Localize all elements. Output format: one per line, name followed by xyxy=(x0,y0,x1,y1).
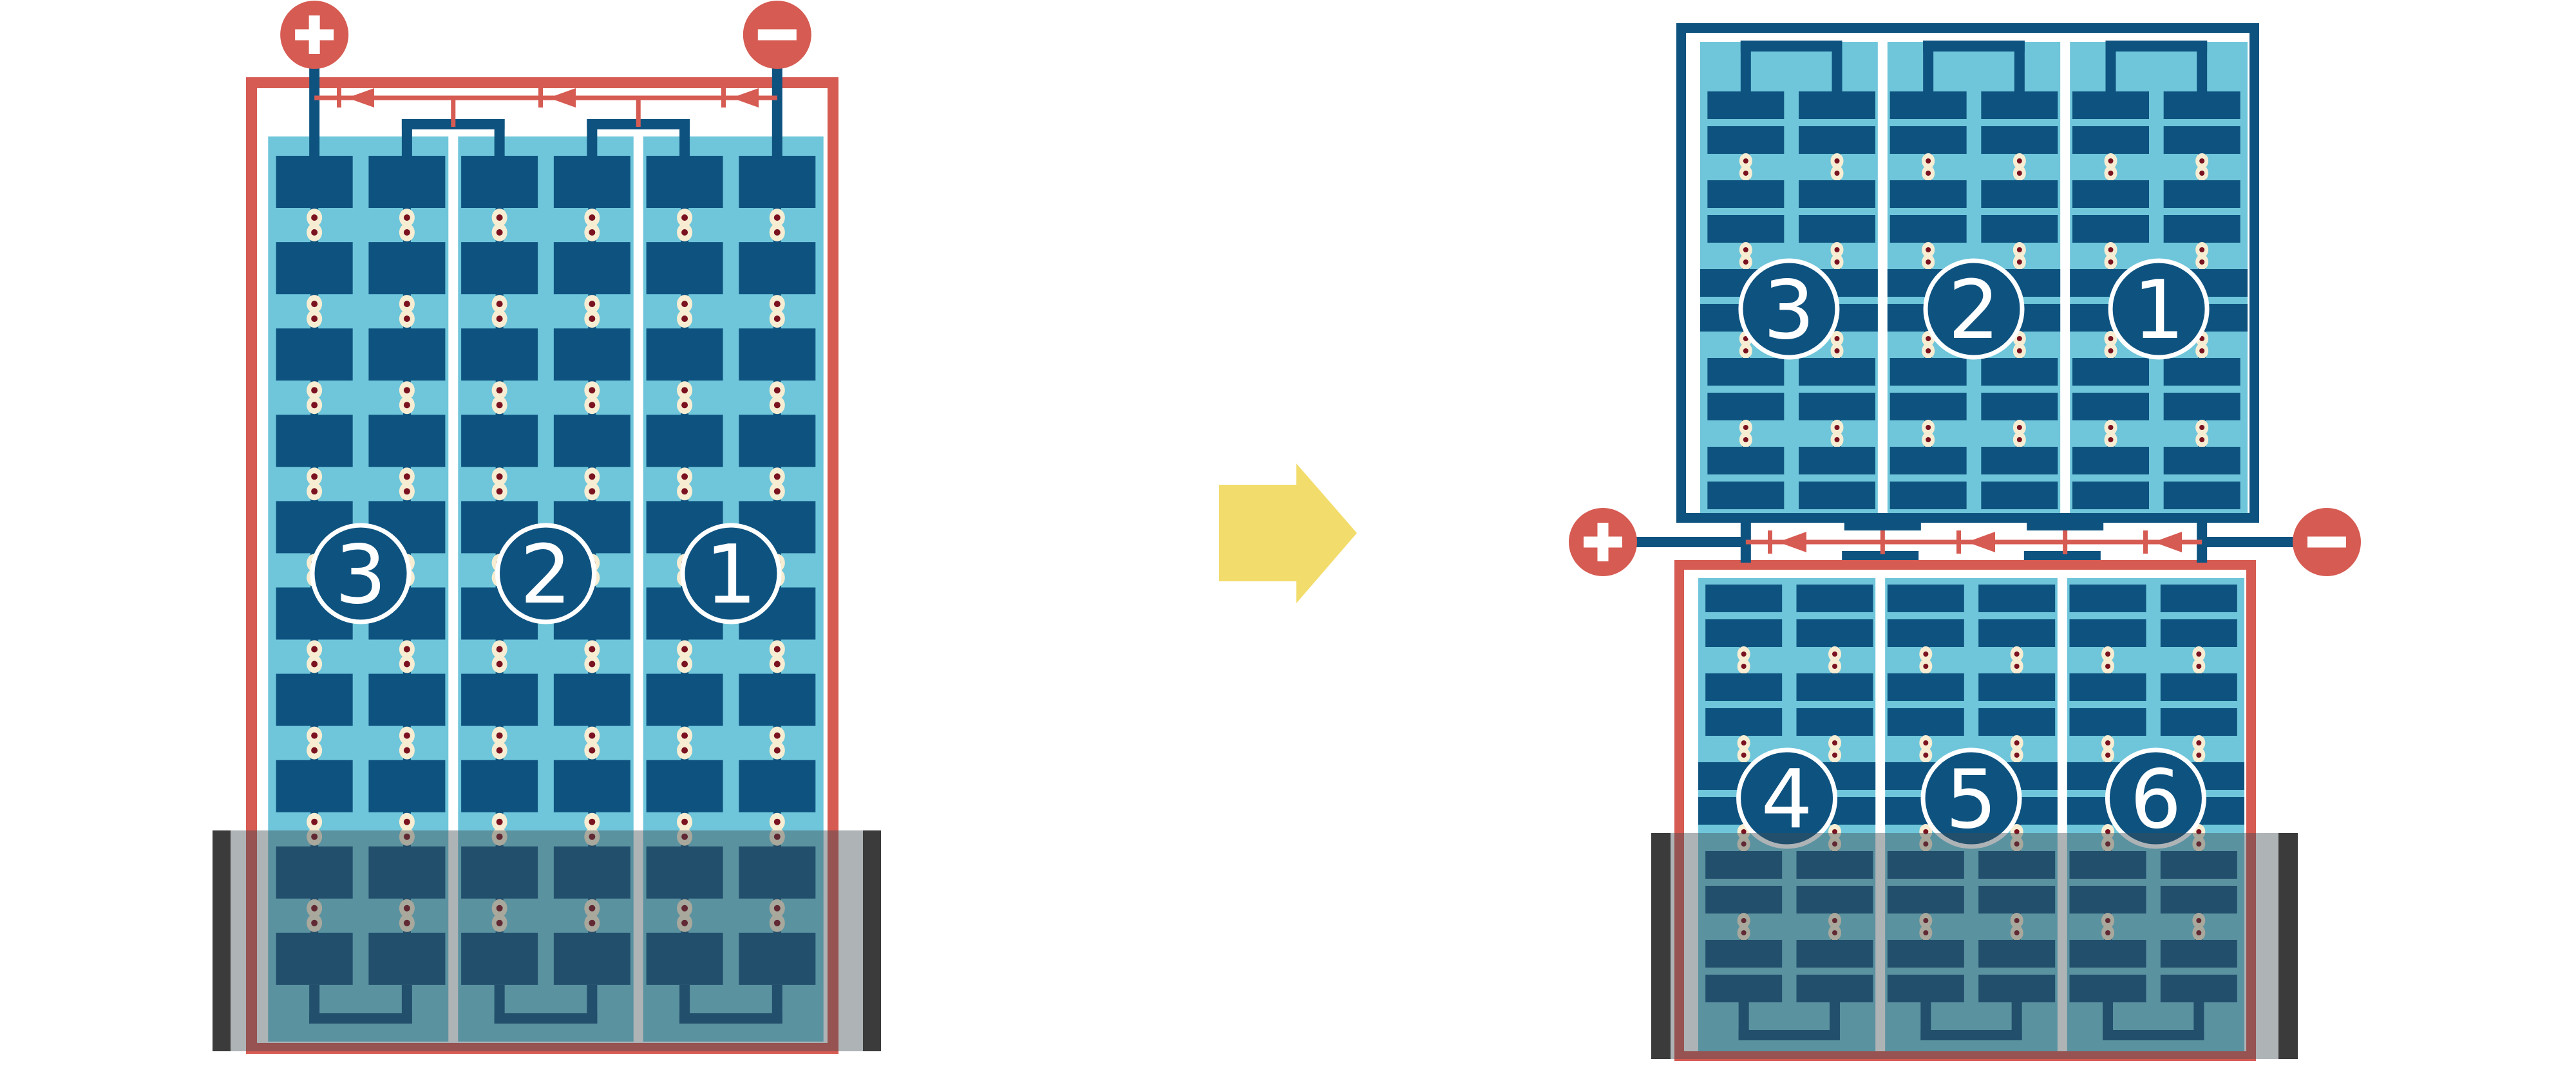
shading-overlay-right xyxy=(1651,833,2298,1059)
solar-half-cell xyxy=(2072,358,2149,386)
solar-half-cell xyxy=(1981,91,2058,119)
solar-half-cell xyxy=(2164,358,2240,386)
solar-half-cell xyxy=(1707,91,1784,119)
solder-dot xyxy=(1923,740,1928,745)
solar-half-cell xyxy=(1890,393,1967,420)
section-badge: 1 xyxy=(2110,261,2207,357)
solar-cell xyxy=(554,415,630,467)
solder-dot xyxy=(1743,348,1748,353)
solder-dot xyxy=(681,661,688,668)
section-badge: 5 xyxy=(1923,750,2020,847)
solar-half-cell xyxy=(1707,126,1784,154)
diode-cathode-bar xyxy=(721,88,726,108)
solar-half-cell xyxy=(1707,447,1784,474)
solder-dot xyxy=(774,402,781,408)
solder-dot xyxy=(589,387,595,393)
solder-dot xyxy=(589,214,595,221)
solar-half-cell xyxy=(2164,126,2240,154)
section-badge: 3 xyxy=(1741,261,1837,357)
solar-half-cell xyxy=(2072,180,2149,208)
solar-half-cell xyxy=(1707,358,1784,386)
solder-dot xyxy=(1743,437,1748,442)
solar-half-cell xyxy=(1978,619,2055,647)
solder-dot xyxy=(1835,158,1840,164)
solder-dot xyxy=(774,819,781,825)
diode-bus-tap xyxy=(451,97,455,127)
solar-cell xyxy=(739,415,815,467)
diagram-canvas: 321321456 xyxy=(0,0,2576,1068)
section-badge: 1 xyxy=(683,525,779,622)
solar-half-cell xyxy=(2070,708,2146,736)
solder-dot xyxy=(2017,425,2022,430)
section-number: 1 xyxy=(705,527,757,622)
solar-half-cell xyxy=(1707,215,1784,243)
negative-terminal xyxy=(2293,508,2361,576)
solder-dot xyxy=(404,315,410,322)
solar-half-cell xyxy=(1890,482,1967,509)
string-top-bridge xyxy=(2197,41,2207,95)
diode-cathode-bar xyxy=(538,88,543,108)
solder-dot xyxy=(404,819,410,825)
solder-dot xyxy=(2108,171,2114,176)
solar-half-cell xyxy=(1981,447,2058,474)
section-number: 4 xyxy=(1761,752,1812,847)
solder-dot xyxy=(681,387,688,393)
solder-dot xyxy=(2199,158,2204,164)
section-divider xyxy=(1878,42,1888,513)
solder-dot xyxy=(497,214,503,221)
solder-dot xyxy=(2199,171,2204,176)
solder-dot xyxy=(2199,437,2204,442)
solder-dot xyxy=(681,229,688,236)
solder-dot xyxy=(2014,740,2020,745)
solar-cell xyxy=(461,415,538,467)
solar-half-cell xyxy=(2070,585,2146,612)
solder-dot xyxy=(404,402,410,408)
solder-dot xyxy=(1741,651,1747,657)
solar-half-cell xyxy=(2161,708,2237,736)
string-top-bridge xyxy=(1741,41,1751,95)
solder-dot xyxy=(404,733,410,739)
solar-half-cell xyxy=(1888,619,1964,647)
solder-dot xyxy=(2108,336,2114,341)
solar-half-cell xyxy=(2164,215,2240,243)
solder-dot xyxy=(681,402,688,408)
solder-dot xyxy=(311,819,317,825)
solder-dot xyxy=(1741,753,1747,758)
solar-cell xyxy=(554,760,630,812)
solar-half-cell xyxy=(1705,673,1782,701)
solder-dot xyxy=(404,301,410,307)
solder-dot xyxy=(497,646,503,653)
solder-dot xyxy=(1743,171,1748,176)
solder-dot xyxy=(1832,753,1837,758)
solder-dot xyxy=(1926,425,1931,430)
solder-dot xyxy=(311,733,317,739)
shade-band xyxy=(1651,833,2298,1059)
solder-dot xyxy=(1926,348,1931,353)
solder-dot xyxy=(404,747,410,754)
solar-half-cell xyxy=(1981,358,2058,386)
solder-dot xyxy=(2017,336,2022,341)
solar-half-cell xyxy=(2161,673,2237,701)
solder-dot xyxy=(2196,753,2201,758)
solder-dot xyxy=(404,473,410,480)
section-badge: 2 xyxy=(1926,261,2022,357)
solder-dot xyxy=(2017,259,2022,265)
solder-dot xyxy=(774,473,781,480)
solder-dot xyxy=(2199,247,2204,252)
string-top-bridge xyxy=(587,119,597,169)
solder-dot xyxy=(1835,437,1840,442)
solar-half-cell xyxy=(1705,708,1782,736)
solder-dot xyxy=(311,488,317,494)
bus-tab xyxy=(1842,551,1918,560)
solder-dot xyxy=(681,473,688,480)
solar-half-cell xyxy=(1707,180,1784,208)
solar-cell xyxy=(647,242,723,294)
solar-cell xyxy=(276,328,353,380)
shade-end-cap xyxy=(213,830,231,1051)
string-top-bridge xyxy=(679,119,690,169)
solder-dot xyxy=(589,819,595,825)
solder-dot xyxy=(2105,740,2110,745)
solar-half-cell xyxy=(1797,708,1873,736)
string-top-bridge xyxy=(402,119,412,169)
solar-cell xyxy=(368,328,445,380)
solder-dot xyxy=(2108,247,2114,252)
section-number: 1 xyxy=(2133,263,2184,357)
solder-dot xyxy=(2017,247,2022,252)
section-number: 3 xyxy=(335,527,386,622)
solar-half-cell xyxy=(1890,447,1967,474)
solar-cell xyxy=(461,760,538,812)
solar-half-cell xyxy=(1978,673,2055,701)
solder-dot xyxy=(1923,753,1928,758)
solar-half-cell xyxy=(1799,482,1875,509)
solar-cell xyxy=(276,674,353,726)
solar-cell xyxy=(739,674,815,726)
solder-dot xyxy=(589,646,595,653)
solder-dot xyxy=(1743,425,1748,430)
solder-dot xyxy=(497,387,503,393)
solder-dot xyxy=(1835,425,1840,430)
solder-dot xyxy=(1926,171,1931,176)
solder-dot xyxy=(404,214,410,221)
solder-dot xyxy=(1923,664,1928,669)
solder-dot xyxy=(1926,158,1931,164)
solder-dot xyxy=(497,473,503,480)
solar-half-cell xyxy=(2072,482,2149,509)
solder-dot xyxy=(2196,664,2201,669)
solar-cell xyxy=(461,674,538,726)
solder-dot xyxy=(1743,259,1748,265)
solar-half-cell xyxy=(1707,393,1784,420)
solar-half-cell xyxy=(1888,585,1964,612)
solar-half-cell xyxy=(1981,393,2058,420)
solar-half-cell xyxy=(1981,482,2058,509)
solder-dot xyxy=(774,229,781,236)
solar-cell xyxy=(368,415,445,467)
solder-dot xyxy=(1835,259,1840,265)
solar-half-cell xyxy=(1978,708,2055,736)
string-top-bridge xyxy=(1923,41,2025,52)
minus-icon xyxy=(2307,537,2346,548)
solder-dot xyxy=(2108,425,2114,430)
solder-dot xyxy=(497,229,503,236)
solar-half-cell xyxy=(1799,447,1875,474)
solder-dot xyxy=(2017,171,2022,176)
solder-dot xyxy=(2108,437,2114,442)
solar-half-cell xyxy=(1799,215,1875,243)
solder-dot xyxy=(774,733,781,739)
solder-dot xyxy=(774,747,781,754)
solar-cell xyxy=(554,328,630,380)
shading-overlay-left xyxy=(213,830,881,1051)
solder-dot xyxy=(681,315,688,322)
solder-dot xyxy=(1741,740,1747,745)
solder-dot xyxy=(311,315,317,322)
solder-dot xyxy=(681,214,688,221)
solder-dot xyxy=(497,747,503,754)
diode-bus-tap xyxy=(636,97,641,127)
solder-dot xyxy=(681,646,688,653)
positive-lead xyxy=(309,61,319,200)
plus-icon xyxy=(309,15,320,54)
positive-terminal xyxy=(1569,508,1637,576)
solar-cell xyxy=(739,328,815,380)
solder-dot xyxy=(497,733,503,739)
bus-tab xyxy=(1844,521,1921,530)
diode-cathode-bar xyxy=(2143,530,2148,554)
solder-dot xyxy=(681,488,688,494)
shade-band xyxy=(213,830,881,1051)
solder-dot xyxy=(1835,348,1840,353)
solder-dot xyxy=(497,301,503,307)
solar-module-wiring-diagram: 321321456 xyxy=(0,0,2576,1068)
solder-dot xyxy=(774,315,781,322)
solder-dot xyxy=(774,387,781,393)
section-number: 3 xyxy=(1763,263,1815,357)
solder-dot xyxy=(1835,247,1840,252)
bus-tab xyxy=(2024,551,2101,560)
solar-half-cell xyxy=(1799,180,1875,208)
solder-dot xyxy=(2017,437,2022,442)
diode-cathode-bar xyxy=(1956,530,1961,554)
solder-dot xyxy=(1926,336,1931,341)
solder-dot xyxy=(1926,437,1931,442)
solder-dot xyxy=(404,661,410,668)
solder-dot xyxy=(774,646,781,653)
solder-dot xyxy=(681,301,688,307)
solar-cell xyxy=(276,760,353,812)
solder-dot xyxy=(681,733,688,739)
solder-dot xyxy=(2017,158,2022,164)
solar-half-cell xyxy=(1890,215,1967,243)
solder-dot xyxy=(311,301,317,307)
solar-half-cell xyxy=(2072,393,2149,420)
solder-dot xyxy=(2014,664,2020,669)
solar-half-cell xyxy=(1978,585,2055,612)
solder-dot xyxy=(1923,651,1928,657)
solder-dot xyxy=(311,747,317,754)
solder-dot xyxy=(1835,171,1840,176)
solar-half-cell xyxy=(2072,91,2149,119)
solar-cell xyxy=(276,415,353,467)
solder-dot xyxy=(1743,247,1748,252)
solar-half-cell xyxy=(2161,585,2237,612)
solar-half-cell xyxy=(2164,447,2240,474)
bus-tab xyxy=(2027,521,2103,530)
solder-dot xyxy=(2108,259,2114,265)
section-divider xyxy=(2060,42,2070,513)
solder-dot xyxy=(681,819,688,825)
solder-dot xyxy=(589,402,595,408)
solder-dot xyxy=(2199,425,2204,430)
section-badge: 6 xyxy=(2107,750,2204,847)
diode-bus-tap xyxy=(1880,530,1885,554)
diode-cathode-bar xyxy=(337,88,341,108)
section-badge: 2 xyxy=(498,525,594,622)
solar-half-cell xyxy=(1890,358,1967,386)
solder-dot xyxy=(404,229,410,236)
solar-cell xyxy=(554,674,630,726)
string-top-bridge xyxy=(495,119,505,169)
solar-cell xyxy=(368,760,445,812)
solar-half-cell xyxy=(1888,673,1964,701)
solar-half-cell xyxy=(1888,708,1964,736)
solder-dot xyxy=(589,473,595,480)
solder-dot xyxy=(2199,348,2204,353)
solder-dot xyxy=(2199,259,2204,265)
solder-dot xyxy=(774,301,781,307)
solar-half-cell xyxy=(1890,91,1967,119)
solder-dot xyxy=(589,301,595,307)
solar-half-cell xyxy=(2164,180,2240,208)
solder-dot xyxy=(497,402,503,408)
solder-dot xyxy=(2108,158,2114,164)
solar-half-cell xyxy=(1707,482,1784,509)
diode-cathode-bar xyxy=(1768,530,1772,554)
solar-half-cell xyxy=(1890,126,1967,154)
string-top-bridge xyxy=(2106,41,2116,95)
solder-dot xyxy=(589,661,595,668)
solder-dot xyxy=(589,733,595,739)
solder-dot xyxy=(311,646,317,653)
solder-dot xyxy=(681,747,688,754)
minus-icon xyxy=(758,30,797,41)
solar-cell xyxy=(647,760,723,812)
section-number: 2 xyxy=(520,527,571,622)
solar-half-cell xyxy=(2164,91,2240,119)
solder-dot xyxy=(497,661,503,668)
solder-dot xyxy=(774,214,781,221)
string-top-bridge xyxy=(2014,41,2025,95)
solder-dot xyxy=(1832,664,1837,669)
solar-half-cell xyxy=(1981,126,2058,154)
string-top-bridge xyxy=(2106,41,2208,52)
solder-dot xyxy=(2017,348,2022,353)
negative-terminal xyxy=(743,1,811,69)
solar-half-cell xyxy=(2164,393,2240,420)
solder-dot xyxy=(311,214,317,221)
solder-dot xyxy=(311,473,317,480)
solar-cell xyxy=(739,242,815,294)
solder-dot xyxy=(1926,259,1931,265)
solder-dot xyxy=(311,402,317,408)
solder-dot xyxy=(311,661,317,668)
section-number: 5 xyxy=(1946,752,1997,847)
shade-end-cap xyxy=(863,830,881,1051)
solar-cell xyxy=(368,242,445,294)
solar-half-cell xyxy=(1705,585,1782,612)
solder-dot xyxy=(589,315,595,322)
negative-lead xyxy=(772,61,782,200)
section-badge: 4 xyxy=(1739,750,1835,847)
solder-dot xyxy=(1832,651,1837,657)
solder-dot xyxy=(2105,753,2110,758)
solder-dot xyxy=(589,488,595,494)
plus-icon xyxy=(1598,523,1609,561)
solar-half-cell xyxy=(1890,180,1967,208)
positive-terminal xyxy=(280,1,348,69)
solder-dot xyxy=(2105,651,2110,657)
solder-dot xyxy=(589,747,595,754)
solder-dot xyxy=(2014,753,2020,758)
solar-cell xyxy=(554,242,630,294)
solar-half-cell xyxy=(2161,619,2237,647)
solder-dot xyxy=(404,646,410,653)
solder-dot xyxy=(497,819,503,825)
solar-cell xyxy=(461,328,538,380)
solar-half-cell xyxy=(1799,126,1875,154)
solder-dot xyxy=(497,488,503,494)
solar-cell xyxy=(461,242,538,294)
solder-dot xyxy=(404,488,410,494)
solder-dot xyxy=(2196,740,2201,745)
solder-dot xyxy=(589,229,595,236)
solder-dot xyxy=(2105,664,2110,669)
solder-dot xyxy=(774,661,781,668)
diode-bus-tap xyxy=(2063,530,2067,554)
solar-cell xyxy=(647,415,723,467)
string-top-bridge xyxy=(1832,41,1842,95)
solder-dot xyxy=(2014,651,2020,657)
solder-dot xyxy=(311,229,317,236)
solder-dot xyxy=(404,387,410,393)
solar-cell xyxy=(276,242,353,294)
solder-dot xyxy=(1926,247,1931,252)
solder-dot xyxy=(1741,664,1747,669)
solder-dot xyxy=(1743,158,1748,164)
solar-half-cell xyxy=(1981,180,2058,208)
solar-half-cell xyxy=(1705,619,1782,647)
section-number: 2 xyxy=(1948,263,2000,357)
solar-half-cell xyxy=(1797,673,1873,701)
solar-half-cell xyxy=(1797,619,1873,647)
shade-end-cap xyxy=(2278,833,2298,1059)
solar-cell xyxy=(739,760,815,812)
solder-dot xyxy=(1835,336,1840,341)
section-badge: 3 xyxy=(312,525,409,622)
solder-dot xyxy=(311,387,317,393)
section-number: 6 xyxy=(2130,752,2181,847)
shade-end-cap xyxy=(1651,833,1671,1059)
solder-dot xyxy=(2196,651,2201,657)
solder-dot xyxy=(2108,348,2114,353)
solar-half-cell xyxy=(2072,126,2149,154)
solar-half-cell xyxy=(2070,673,2146,701)
